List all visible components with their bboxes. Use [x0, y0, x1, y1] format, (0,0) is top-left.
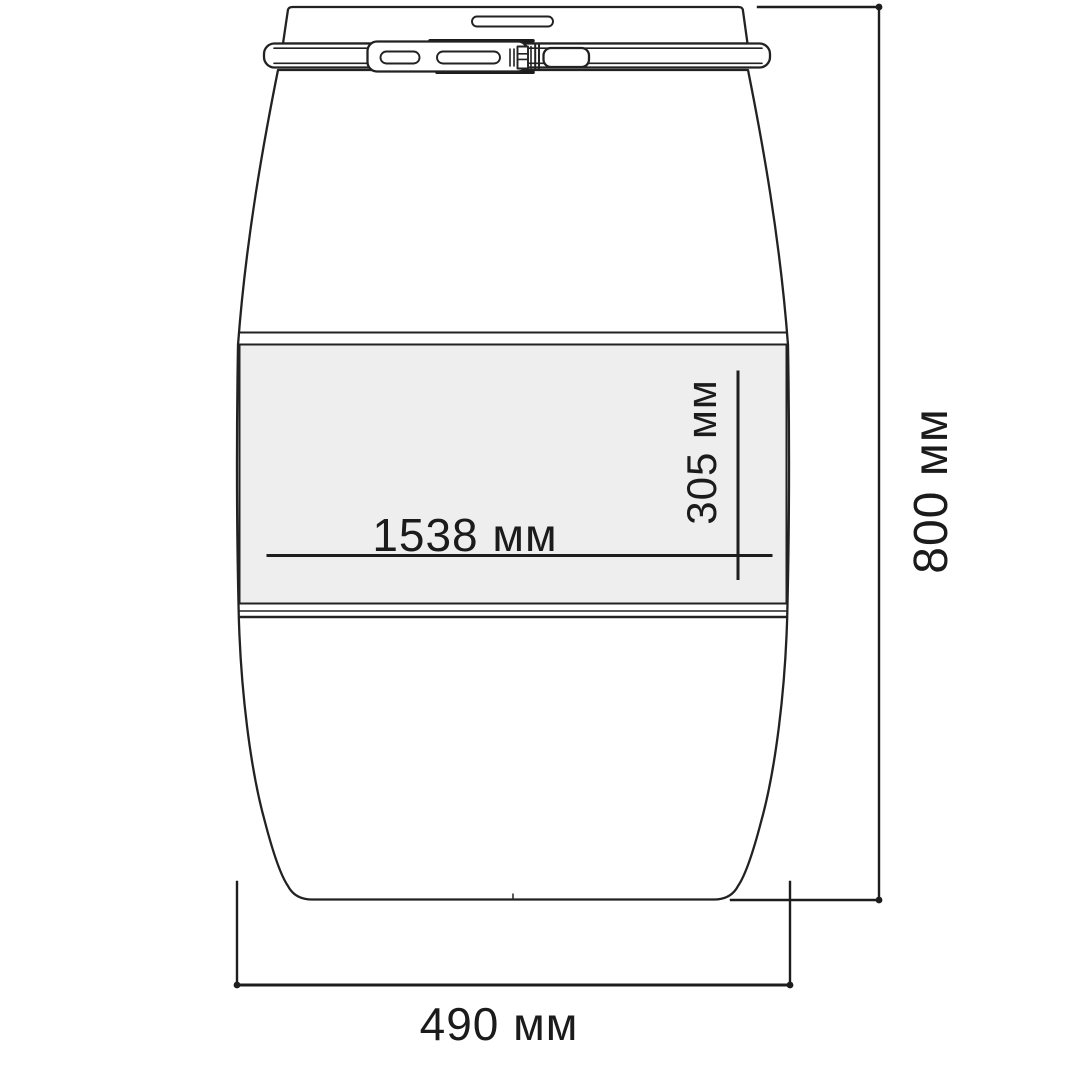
dimension-label-height: 800 мм	[905, 408, 958, 573]
clamp-ring	[264, 41, 770, 72]
barrel-dimensions-diagram: 1538 мм 305 мм 800 мм 490 мм	[0, 0, 1084, 1084]
dimension-dot	[787, 982, 794, 989]
dimension-dot	[876, 4, 883, 11]
barrel-technical-drawing: 1538 мм 305 мм 800 мм 490 мм	[0, 0, 1084, 1084]
latch-slot-left	[381, 52, 420, 64]
latch-slot-right	[437, 52, 500, 64]
barrel-lid	[283, 7, 748, 44]
dimension-dot	[234, 982, 241, 989]
latch-tongue	[544, 48, 590, 67]
dimension-label-band-height: 305 мм	[678, 379, 725, 525]
dimension-width: 490 мм	[234, 882, 794, 1050]
dimension-label-width: 490 мм	[420, 998, 579, 1050]
dimension-dot	[876, 897, 883, 904]
lid-handle-recess	[472, 17, 553, 27]
dimension-label-length: 1538 мм	[372, 509, 557, 561]
